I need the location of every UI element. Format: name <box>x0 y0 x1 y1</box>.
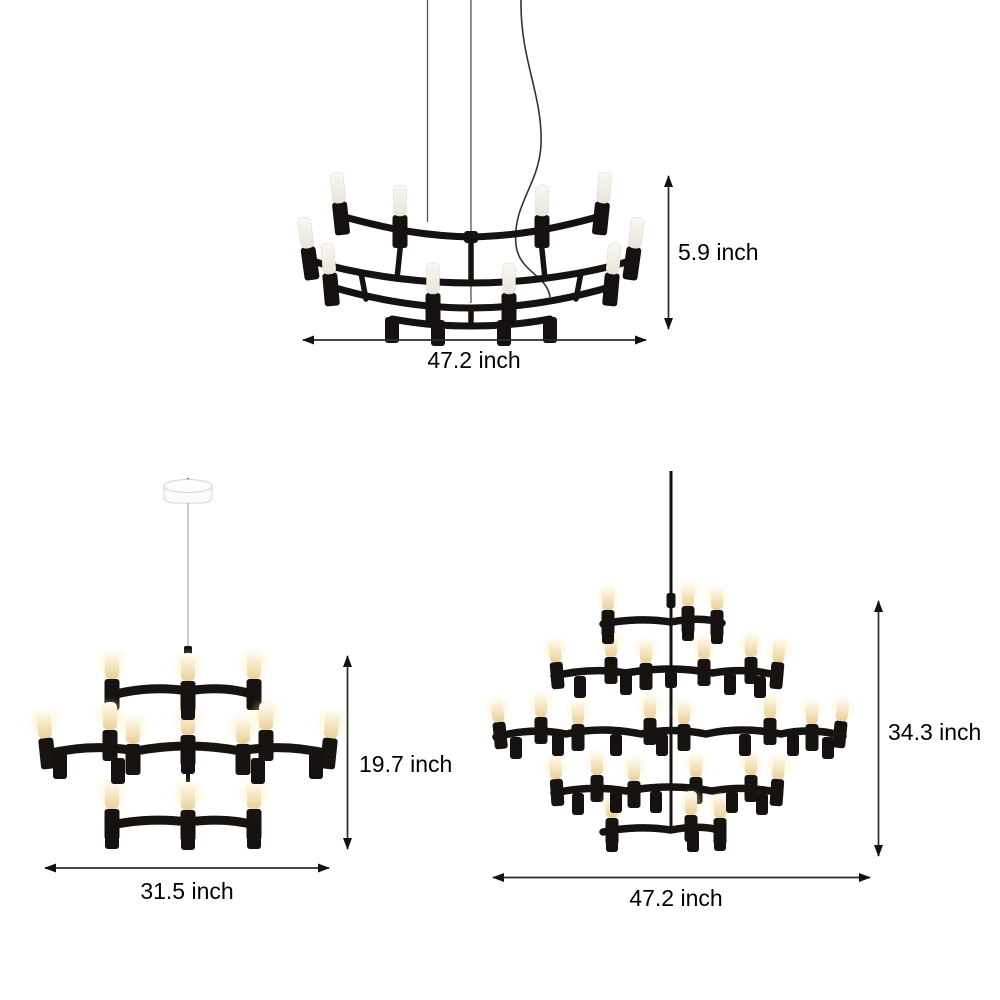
flat-width-label: 47.2 inch <box>427 348 520 373</box>
chandelier-three-tier-image <box>25 478 351 850</box>
figure-canvas <box>0 0 1000 1000</box>
chandelier-five-tier-image <box>482 471 858 852</box>
suspension-wires <box>428 0 551 303</box>
three-tier-width-label: 31.5 inch <box>140 879 233 904</box>
three-tier-height-label: 19.7 inch <box>359 752 452 777</box>
candles <box>25 646 351 841</box>
five-tier-height-label: 34.3 inch <box>888 720 981 745</box>
center-hub <box>464 231 478 243</box>
chandelier-flat-image <box>296 0 646 346</box>
flat-height-label: 5.9 inch <box>678 240 759 265</box>
rod-fitting <box>667 593 676 608</box>
ceiling-canopy <box>164 478 212 503</box>
five-tier-width-label: 47.2 inch <box>629 886 722 911</box>
product-dimensions-figure: 5.9 inch 47.2 inch 19.7 inch 31.5 inch 3… <box>0 0 1000 1000</box>
